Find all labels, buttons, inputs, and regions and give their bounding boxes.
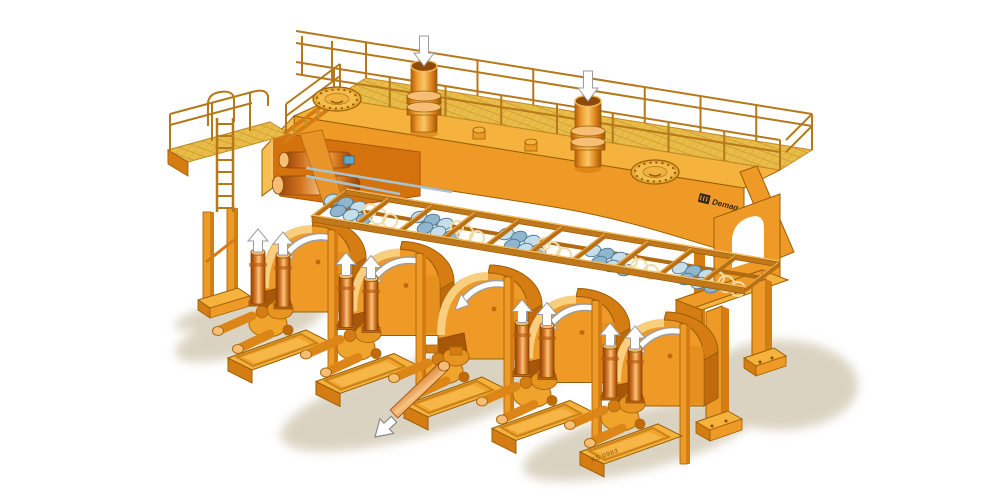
- illustration-stage: Demag: [0, 0, 1000, 500]
- pouring-tube: [571, 71, 605, 173]
- deck-peg: [525, 139, 537, 151]
- blue-fitting: [344, 156, 354, 164]
- platform-support-legs: [198, 208, 250, 318]
- pouring-tube: [407, 36, 441, 138]
- manhole-cover: [631, 160, 679, 184]
- machine-illustration: Demag: [0, 0, 1000, 500]
- deck-peg: [473, 127, 485, 139]
- access-ladder: [217, 118, 233, 212]
- manhole-cover: [313, 87, 361, 111]
